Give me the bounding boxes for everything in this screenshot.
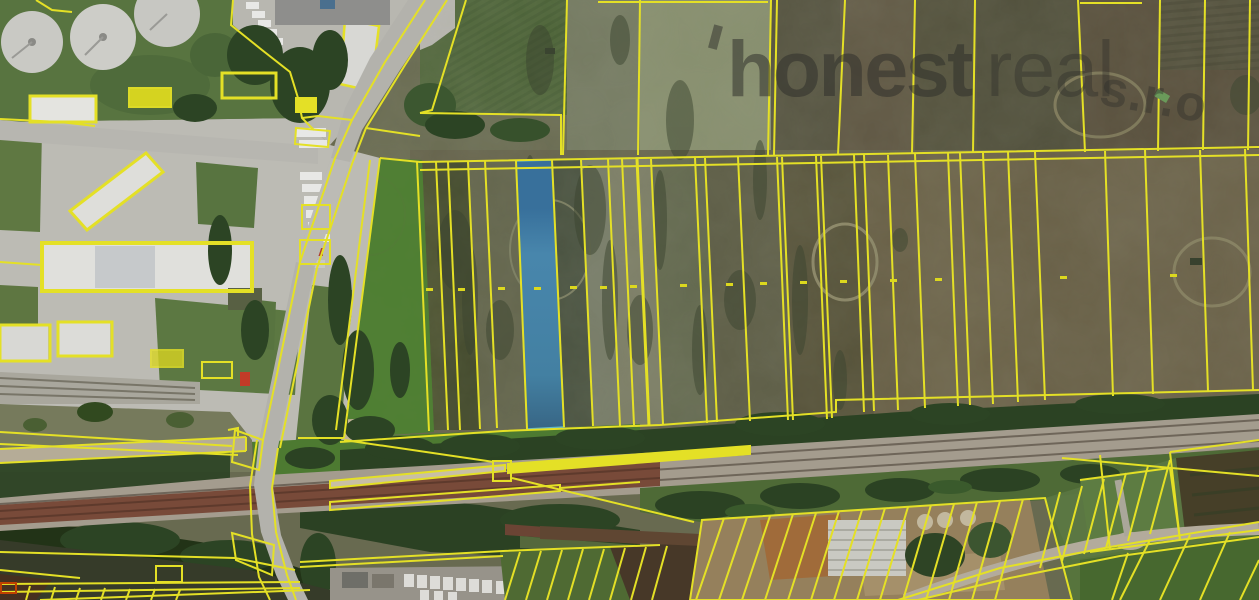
svg-text:honest: honest	[727, 24, 973, 113]
svg-text:real: real	[986, 24, 1114, 113]
